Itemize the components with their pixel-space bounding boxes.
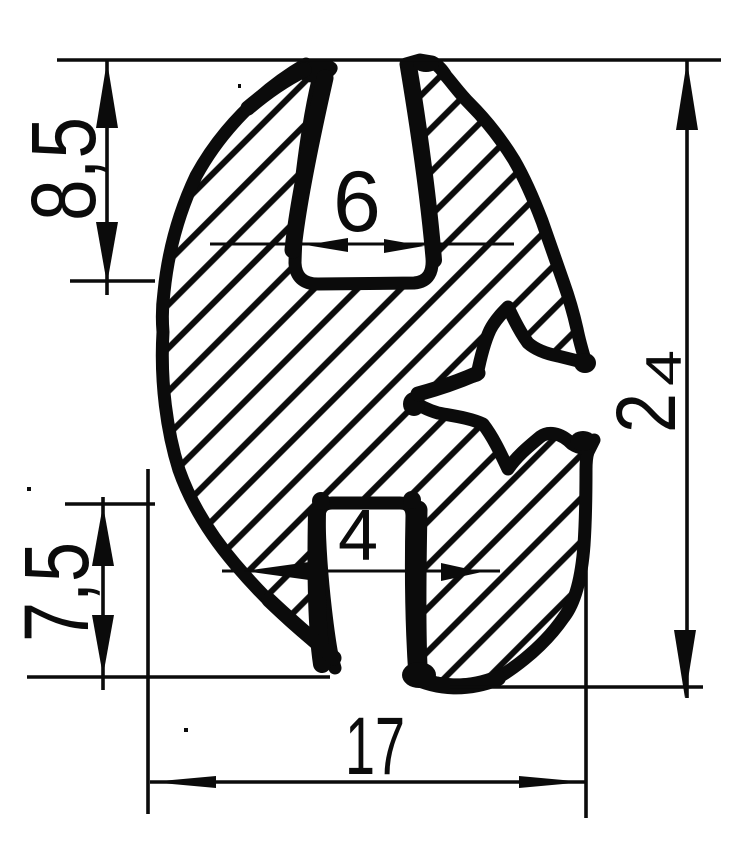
- svg-text:8,5: 8,5: [13, 117, 115, 221]
- svg-text:4: 4: [338, 496, 378, 576]
- svg-text:6: 6: [333, 154, 381, 250]
- svg-text:4: 4: [636, 350, 692, 386]
- svg-text:17: 17: [345, 701, 405, 792]
- svg-text:2: 2: [599, 393, 693, 433]
- svg-text:7,5: 7,5: [6, 542, 108, 642]
